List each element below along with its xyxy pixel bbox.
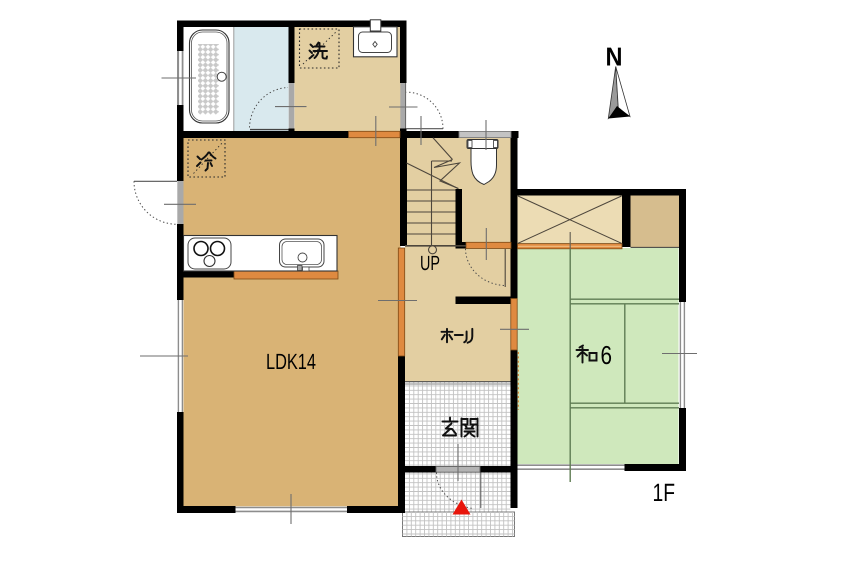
svg-text:UP: UP: [420, 252, 440, 275]
svg-text:6: 6: [601, 340, 613, 370]
svg-text:N: N: [606, 42, 623, 72]
svg-text:LDK14: LDK14: [266, 349, 316, 374]
svg-text:1F: 1F: [653, 479, 676, 507]
